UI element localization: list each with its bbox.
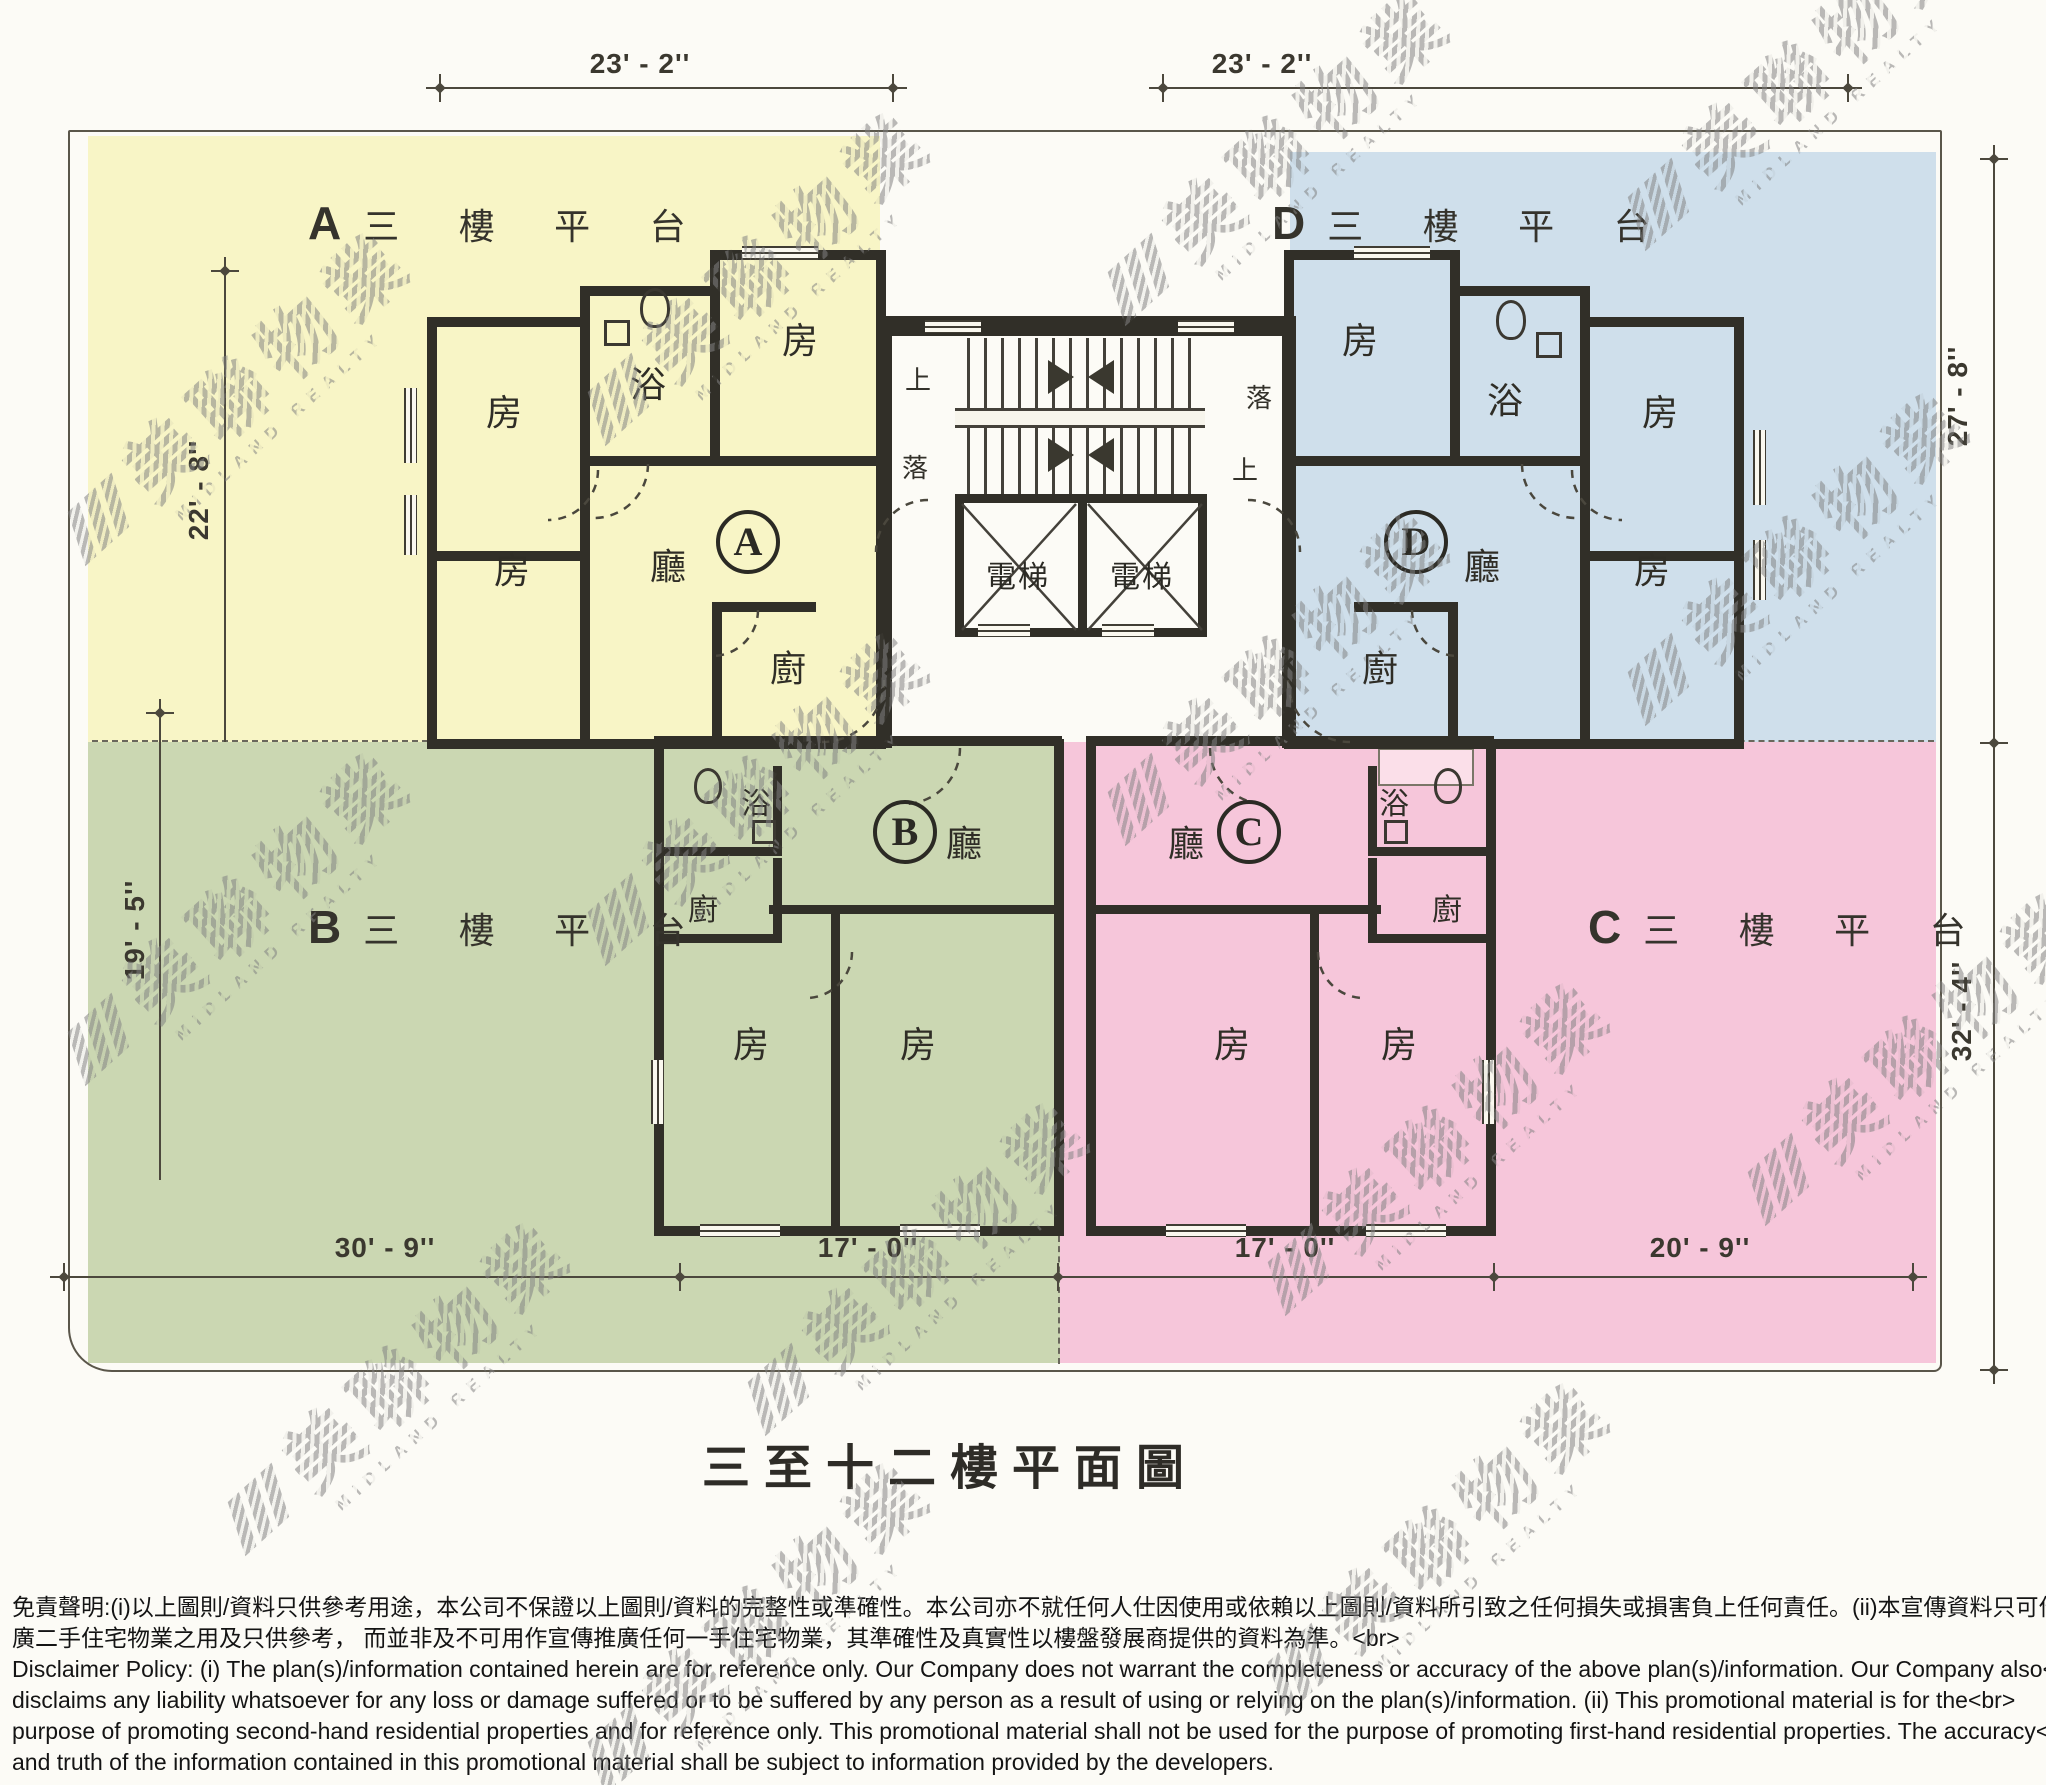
dimension-cross xyxy=(146,699,174,727)
elevator-label: 電梯 xyxy=(958,552,1078,596)
dimension-label-bottom-4: 20' - 9'' xyxy=(1615,1232,1785,1264)
room-label-living: 廳 xyxy=(1464,538,1500,590)
room-label-bedroom: 房 xyxy=(733,1016,769,1068)
dimension-line xyxy=(64,1276,1913,1278)
dimension-cross xyxy=(1980,729,2008,757)
dimension-line xyxy=(1163,87,1848,89)
room-label-kitchen: 廚 xyxy=(1362,640,1398,692)
room-label-bath: 浴 xyxy=(741,779,771,823)
dimension-cross xyxy=(211,257,239,285)
dimension-cross xyxy=(666,1263,694,1291)
dimension-line xyxy=(224,270,226,742)
room-label-bath: 浴 xyxy=(1487,372,1523,424)
floor-plan-page: A三 樓 平 台 D三 樓 平 台 B三 樓 平 台 C三 樓 平 台 房 浴 … xyxy=(0,0,2046,1785)
unit-d-terrace-text: 三 樓 平 台 xyxy=(1327,207,1673,248)
dimension-line xyxy=(440,87,893,89)
room-label-kitchen: 廚 xyxy=(1432,885,1462,929)
unit-d-circle: D xyxy=(1384,510,1448,574)
unit-c-terrace-text: 三 樓 平 台 xyxy=(1643,911,1989,952)
unit-a-circle: A xyxy=(716,510,780,574)
room-label-bedroom: 房 xyxy=(1214,1016,1250,1068)
dimension-label-left-upper: 22' - 8'' xyxy=(183,410,215,570)
dimension-cross xyxy=(1480,1263,1508,1291)
unit-b-letter: B xyxy=(308,901,341,953)
stair-up-label: 上 xyxy=(905,360,931,397)
dimension-label-bottom-3: 17' - 0'' xyxy=(1200,1232,1370,1264)
dimension-cross xyxy=(50,1263,78,1291)
unit-d-terrace-title: D三 樓 平 台 xyxy=(1272,196,1674,250)
stair-up-label: 上 xyxy=(1232,450,1258,487)
unit-d-letter: D xyxy=(1272,197,1305,249)
room-label-bath: 浴 xyxy=(630,356,666,408)
dimension-label-left-lower: 19' - 5'' xyxy=(119,850,151,1010)
dimension-cross xyxy=(879,74,907,102)
dimension-label-bottom-1: 30' - 9'' xyxy=(300,1232,470,1264)
room-label-bedroom: 房 xyxy=(1381,1016,1417,1068)
dimension-label-top-right: 23' - 2'' xyxy=(1182,48,1342,80)
disclaimer-line: 免責聲明:(i)以上圖則/資料只供參考用途，本公司不保證以上圖則/資料的完整性或… xyxy=(12,1592,2042,1623)
room-label-bedroom: 房 xyxy=(1642,384,1678,436)
disclaimer-line: and truth of the information contained i… xyxy=(12,1747,2042,1778)
room-label-bath: 浴 xyxy=(1379,779,1409,823)
room-label-bedroom: 房 xyxy=(900,1016,936,1068)
unit-c-circle: C xyxy=(1217,800,1281,864)
disclaimer-line: purpose of promoting second-hand residen… xyxy=(12,1716,2042,1747)
dimension-cross xyxy=(426,74,454,102)
unit-a-terrace-title: A三 樓 平 台 xyxy=(308,196,710,250)
disclaimer-line: Disclaimer Policy: (i) The plan(s)/infor… xyxy=(12,1654,2042,1685)
floor-plan-title: 三至十二樓平面圖 xyxy=(640,1428,1260,1498)
dimension-cross xyxy=(1980,145,2008,173)
room-label-bedroom: 房 xyxy=(782,312,818,364)
door-arc-layer xyxy=(0,0,2046,1785)
dimension-label-right-lower: 32' - 4'' xyxy=(1946,931,1978,1091)
room-label-bedroom: 房 xyxy=(1342,312,1378,364)
disclaimer-line: 廣二手住宅物業之用及只供參考， 而並非及不可用作宣傳推廣任何一手住宅物業，其準確… xyxy=(12,1623,2042,1654)
dimension-cross xyxy=(1834,74,1862,102)
unit-c-terrace-title: C三 樓 平 台 xyxy=(1588,900,1990,954)
elevator-label: 電梯 xyxy=(1082,552,1202,596)
dimension-cross xyxy=(1149,74,1177,102)
stair-down-label: 落 xyxy=(902,448,928,485)
dimension-line xyxy=(1993,158,1995,742)
room-label-bedroom: 房 xyxy=(1634,542,1670,594)
unit-b-terrace-title: B三 樓 平 台 xyxy=(308,900,710,954)
unit-c-letter: C xyxy=(1588,901,1621,953)
unit-a-letter: A xyxy=(308,197,341,249)
room-label-bedroom: 房 xyxy=(486,384,522,436)
room-label-living: 廳 xyxy=(1168,815,1204,867)
dimension-line xyxy=(1993,742,1995,1370)
unit-b-terrace-text: 三 樓 平 台 xyxy=(363,911,709,952)
unit-b-circle: B xyxy=(873,800,937,864)
room-label-kitchen: 廚 xyxy=(688,885,718,929)
dimension-label-right-upper: 27' - 8'' xyxy=(1942,316,1974,476)
dimension-cross xyxy=(1980,1356,2008,1384)
dimension-cross xyxy=(1044,1263,1072,1291)
stair-down-label: 落 xyxy=(1246,378,1272,415)
dimension-label-top-left: 23' - 2'' xyxy=(560,48,720,80)
disclaimer-line: disclaims any liability whatsoever for a… xyxy=(12,1685,2042,1716)
room-label-living: 廳 xyxy=(946,815,982,867)
room-label-kitchen: 廚 xyxy=(770,640,806,692)
dimension-line xyxy=(159,712,161,1180)
room-label-bedroom: 房 xyxy=(494,542,530,594)
room-label-living: 廳 xyxy=(650,538,686,590)
unit-a-terrace-text: 三 樓 平 台 xyxy=(363,207,709,248)
dimension-label-bottom-2: 17' - 0'' xyxy=(783,1232,953,1264)
dimension-cross xyxy=(1899,1263,1927,1291)
